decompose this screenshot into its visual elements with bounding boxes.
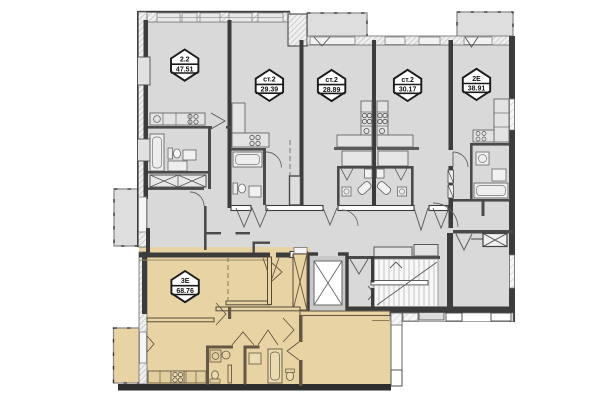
svg-text:ст.2: ст.2	[263, 77, 276, 84]
svg-text:ст.2: ст.2	[325, 77, 338, 84]
svg-text:28.89: 28.89	[323, 87, 341, 94]
svg-text:29.39: 29.39	[261, 87, 279, 94]
svg-text:68.76: 68.76	[176, 288, 194, 295]
svg-text:30.17: 30.17	[399, 87, 417, 94]
svg-text:47.51: 47.51	[176, 66, 194, 73]
svg-text:2Е: 2Е	[472, 76, 481, 83]
svg-text:3Е: 3Е	[181, 278, 190, 285]
svg-text:38.91: 38.91	[468, 86, 486, 93]
svg-text:ст.2: ст.2	[401, 77, 414, 84]
svg-text:2.2: 2.2	[180, 57, 190, 64]
